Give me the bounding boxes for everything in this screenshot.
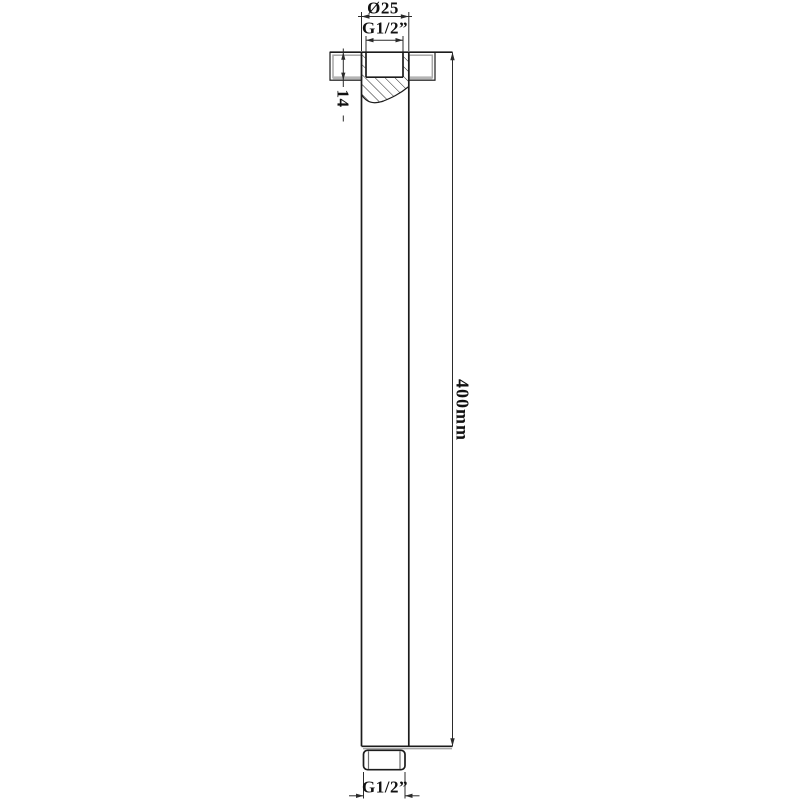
- section-hatch: [362, 77, 409, 103]
- flange-left-half: [330, 52, 362, 80]
- arrowhead: [450, 738, 454, 746]
- pipe-body: [362, 52, 453, 748]
- flange-height-label: 14: [334, 90, 353, 108]
- drawing-canvas: Ø25 G1/2” 14: [0, 0, 800, 800]
- flange-inner-right: [409, 55, 432, 77]
- thread-label-top: G1/2”: [362, 19, 408, 38]
- arrowhead: [396, 38, 404, 42]
- bottom-thread-dimension: G1/2”: [349, 772, 420, 799]
- flange-height-dimension: 14: [334, 49, 353, 122]
- thread-label-bottom: G1/2”: [362, 778, 408, 797]
- nipple-outline: [364, 750, 406, 769]
- bottom-thread-fitting: [364, 750, 406, 769]
- length-dimension: 400mm: [450, 52, 472, 746]
- wall-hatch-right: [403, 52, 409, 77]
- top-thread-dimension: G1/2”: [362, 19, 408, 52]
- arrowhead: [450, 52, 454, 60]
- arrowhead: [366, 38, 374, 42]
- flange-inner-left: [333, 55, 362, 77]
- technical-drawing: Ø25 G1/2” 14: [0, 0, 800, 800]
- flange-right-half: [409, 52, 435, 80]
- diameter-label: Ø25: [367, 0, 399, 18]
- arrowhead: [341, 52, 345, 60]
- length-label: 400mm: [453, 379, 473, 441]
